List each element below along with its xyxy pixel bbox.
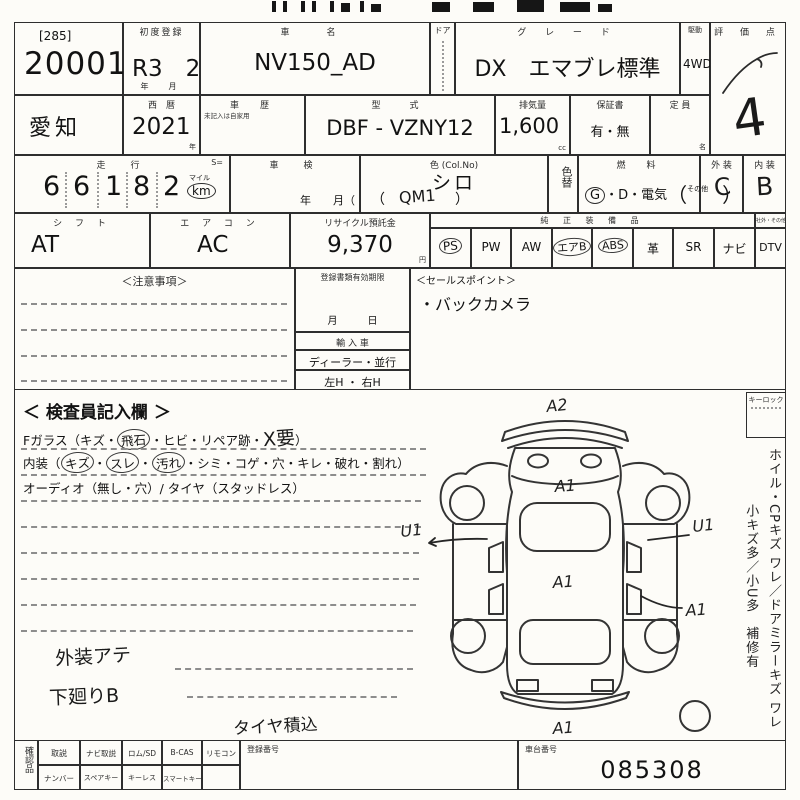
dtv-cell: DTV: [755, 228, 786, 268]
drive-label: 駆動: [681, 25, 709, 35]
number-plate-cell: ナンバー: [38, 765, 80, 790]
mileage-digit-5: 2: [163, 171, 180, 202]
mark-front-top: A2: [544, 395, 568, 416]
capacity-cell: 定 員 名: [650, 95, 710, 155]
interior-rest: ・シミ・コゲ・穴・キレ・破れ・割れ）: [185, 456, 410, 471]
equipment-sr: SR: [674, 240, 713, 254]
hand-note-exterior: 外装アテ: [54, 640, 131, 671]
interior-label: 内 装: [744, 158, 785, 171]
check-items-label-cell: 確認品: [14, 740, 38, 790]
first-registration-value: R3 2: [132, 49, 200, 83]
handle-position-cell: 左H ・ 右H: [295, 370, 410, 390]
exterior-label: 外 装: [701, 158, 742, 171]
fuel-g-circled: G: [585, 187, 605, 204]
sales-point-value: ・バックカメラ: [419, 291, 531, 315]
warranty-label: 保証書: [571, 98, 649, 111]
dtv-value: DTV: [756, 241, 785, 254]
aircon-label: エ ア コ ン: [151, 216, 289, 229]
mark-left-side: U1: [399, 520, 423, 541]
right-rear-wheel: [645, 619, 679, 653]
equipment-cell-abs: ABS: [592, 228, 633, 268]
recycle-yen: 円: [419, 255, 426, 265]
import-label: 輸 入 車: [296, 336, 409, 349]
sep2: ・: [139, 456, 152, 471]
equipment-ps: PS: [439, 237, 463, 255]
interior-circled-sure: スレ: [105, 451, 139, 474]
mark-right-side: U1: [691, 515, 715, 536]
equipment-cell-ps: PS: [430, 228, 471, 268]
dtv-header-cell: 社外・その他: [755, 213, 786, 228]
keylock-label: キーロック: [747, 395, 785, 405]
right-rear-fender: [623, 620, 678, 672]
year-label: 西 暦: [124, 98, 199, 111]
mileage-cell: 走 行 S= 6 6 1 8 2 マイル km: [14, 155, 230, 213]
chassis-number-value: 085308: [519, 756, 785, 784]
equipment-leather: 革: [634, 240, 672, 257]
car-name-label: 車 名: [201, 25, 429, 38]
year-unit: 年: [189, 142, 196, 152]
warranty-cell: 保証書 有・無: [570, 95, 650, 155]
auction-sheet: [285] 20001 初度登録 R3 2 年 月 車 名 NV150_AD ド…: [0, 0, 800, 800]
grade-value: DX エマブレ標準: [456, 51, 679, 83]
navi-manual-cell: ナビ取説: [80, 740, 122, 765]
bottom-empty-cell: [202, 765, 240, 790]
bcas-label: B-CAS: [163, 748, 201, 757]
handle-label: 左H ・ 右H: [296, 374, 409, 390]
equipment-cell-leather: 革: [633, 228, 673, 268]
right-rear-a1-arrow: [641, 596, 682, 608]
color-change-cell: 色替: [548, 155, 578, 213]
lot-prefix: [285]: [39, 29, 71, 43]
registration-number-cell: 登録番号: [240, 740, 518, 790]
equipment-cell-sr: SR: [673, 228, 714, 268]
keyless-cell: キーレス: [122, 765, 162, 790]
registration-number-label: 登録番号: [247, 744, 279, 755]
door-cell: ドア: [430, 22, 455, 95]
equipment-cell-airbag: エアB: [552, 228, 592, 268]
check-items-label: 確認品: [22, 746, 35, 773]
color-cell: 色 (Col.No) シロ （ ） QM1: [360, 155, 548, 213]
keyless-label: キーレス: [123, 773, 161, 783]
registration-docs-cell: 登録書類有効期限 月 日: [295, 268, 410, 332]
shift-cell: シ フ ト AT: [14, 213, 150, 268]
spare-key-cell: スペアキー: [80, 765, 122, 790]
stamp-circle: [680, 701, 710, 731]
keylock-cell: キーロック: [746, 392, 786, 438]
color-code-hand: QM1: [398, 186, 436, 208]
left-rear-fender: [452, 620, 507, 672]
equipment-airbag: エアB: [553, 237, 592, 258]
inspection-cell: 車 検 年 月（: [230, 155, 360, 213]
lot-number: 20001: [24, 46, 128, 82]
spare-key-label: スペアキー: [81, 773, 121, 783]
year-value: 2021: [132, 114, 191, 140]
audio-tire-line: オーディオ（無し・穴）/ タイヤ（スタッドレス）: [23, 478, 305, 497]
history-cell: 車 歴 未記入は自家用: [200, 95, 305, 155]
history-note: 未記入は自家用: [204, 110, 250, 120]
fglass-mid: ・ヒビ・リペア跡・: [150, 433, 263, 448]
displacement-value: 1,600: [499, 114, 559, 138]
equipment-header: 純 正 装 備 品: [430, 213, 755, 228]
interior-grade-hand: B: [755, 172, 774, 202]
mileage-s-label: S=: [211, 158, 223, 167]
rom-sd-label: ロム/SD: [123, 748, 161, 759]
aircon-cell: エ ア コ ン AC: [150, 213, 290, 268]
displacement-cell: 排気量 1,600 cc: [495, 95, 570, 155]
interior-circled-yogore: 汚れ: [151, 451, 185, 474]
inspector-title: ＜ 検査員記入欄 ＞: [23, 398, 171, 423]
equipment-label: 純 正 装 備 品: [431, 215, 754, 226]
displacement-unit: cc: [558, 144, 566, 152]
hand-note-tires: タイヤ積込: [232, 710, 318, 739]
capacity-unit: 名: [699, 142, 706, 152]
fuel-label: 燃 料: [579, 158, 699, 171]
car-name-cell: 車 名 NV150_AD: [200, 22, 430, 95]
equipment-aw: AW: [512, 240, 551, 254]
drive-value: 4WD: [683, 57, 712, 71]
dtv-header: 社外・その他: [756, 217, 785, 224]
left-front-fender: [441, 463, 507, 524]
mile-label: マイル: [189, 173, 210, 183]
import-car-cell: 輸 入 車: [295, 332, 410, 350]
equipment-pw: PW: [472, 240, 510, 254]
rom-sd-cell: ロム/SD: [122, 740, 162, 765]
right-u1-arrow: [648, 535, 689, 540]
model-value: DBF - VZNY12: [306, 116, 494, 140]
sidebar-vertical-note: ホイル・CPキズ ワレ／ドアミラーキズ ワレ 小キズ多／小U多 補修有: [736, 448, 784, 740]
left-front-wheel: [450, 486, 484, 520]
number-plate-label: ナンバー: [39, 773, 79, 784]
warranty-value: 有・無: [571, 121, 649, 140]
mileage-digit-1: 6: [43, 171, 60, 202]
right-front-fender: [623, 463, 689, 524]
shift-label: シ フ ト: [15, 216, 149, 229]
recycle-fee: 9,370: [291, 232, 429, 258]
lot-number-cell: [285] 20001: [14, 22, 123, 95]
mark-roof: A1: [551, 572, 574, 592]
recycle-label: リサイクル預託金: [291, 216, 429, 229]
smart-key-cell: スマートキー: [162, 765, 202, 790]
docs-label: 登録書類有効期限: [296, 272, 409, 283]
manual-cell: 取説: [38, 740, 80, 765]
km-label: km: [187, 183, 216, 199]
remote-label: リモコン: [203, 748, 239, 759]
bcas-cell: B-CAS: [162, 740, 202, 765]
inspection-units: 年 月（: [300, 192, 355, 208]
score-cell: 評 価 点 4: [710, 22, 786, 155]
chassis-number-cell: 車台番号 085308: [518, 740, 786, 790]
recycle-fee-cell: リサイクル預託金 9,370 円: [290, 213, 430, 268]
fglass-pre: Fガラス（キズ・: [23, 433, 117, 448]
grade-cell: グ レ ー ド DX エマブレ標準: [455, 22, 680, 95]
model-year-cell: 西 暦 2021 年: [123, 95, 200, 155]
color-change-label: 色替: [558, 166, 574, 188]
fuel-paren-open: （: [667, 183, 687, 207]
mileage-label: 走 行: [15, 158, 229, 171]
capacity-label: 定 員: [651, 98, 709, 111]
dealer-label: ディーラー・並行: [296, 354, 409, 370]
windshield: [520, 503, 610, 551]
first-registration-label: 初度登録: [124, 25, 199, 38]
car-damage-diagram: A2 A1 U1 U1 A1 A1 A1: [395, 392, 745, 742]
mileage-digit-2: 6: [73, 171, 90, 202]
model-code-cell: 型 式 DBF - VZNY12: [305, 95, 495, 155]
score-label: 評 価 点: [711, 25, 785, 38]
mileage-digit-4: 8: [133, 171, 150, 202]
smart-key-label: スマートキー: [163, 773, 201, 783]
exterior-grade-hand: C: [713, 172, 733, 202]
mark-rear-bottom: A1: [551, 718, 574, 738]
keylock-subtext-squiggle: [751, 407, 781, 409]
sales-point-cell: ＜セールスポイント＞ ・バックカメラ: [410, 268, 786, 390]
interior-circled-kizu: キズ: [60, 451, 94, 474]
model-label: 型 式: [306, 98, 494, 111]
fuel-options: ・D・電気: [605, 188, 667, 203]
equipment-abs: ABS: [597, 237, 628, 254]
manual-label: 取説: [39, 748, 79, 759]
hand-note-underbody: 下廻りB: [49, 681, 120, 710]
equipment-navi: ナビ: [715, 240, 754, 257]
mark-right-rear: A1: [684, 600, 707, 620]
fglass-close: ）: [295, 433, 308, 448]
fuel-cell: 燃 料 G・D・電気（その他）: [578, 155, 700, 213]
prefecture-cell: 愛知: [14, 95, 123, 155]
prefecture: 愛知: [29, 110, 81, 142]
mileage-digit-3: 1: [105, 171, 122, 202]
left-rear-wheel: [451, 619, 485, 653]
sales-point-label: ＜セールスポイント＞: [416, 272, 516, 287]
first-registration-cell: 初度登録 R3 2 年 月: [123, 22, 200, 95]
equipment-cell-navi: ナビ: [714, 228, 755, 268]
notes-cell: ＜注意事項＞: [14, 268, 295, 390]
exterior-grade-cell: 外 装 C: [700, 155, 743, 213]
left-u1-arrow: [429, 538, 487, 546]
equipment-cell-aw: AW: [511, 228, 552, 268]
interior-grade-cell: 内 装 B: [743, 155, 786, 213]
notes-label: ＜注意事項＞: [15, 273, 294, 289]
rear-window: [520, 620, 610, 664]
interior-pre: 内装（: [23, 456, 61, 471]
door-label: ドア: [431, 25, 454, 36]
inspection-label: 車 検: [231, 158, 359, 171]
interior-line: 内装（キズ・スレ・汚れ・シミ・コゲ・穴・キレ・破れ・割れ）: [23, 452, 410, 473]
grade-label: グ レ ー ド: [456, 25, 679, 38]
aircon-value: AC: [197, 232, 228, 258]
dealer-parallel-cell: ディーラー・並行: [295, 350, 410, 370]
first-registration-units: 年 月: [124, 81, 199, 92]
sep1: ・: [94, 456, 107, 471]
remote-cell: リモコン: [202, 740, 240, 765]
drive-cell: 駆動 4WD: [680, 22, 710, 95]
shift-value: AT: [31, 232, 59, 258]
equipment-cell-pw: PW: [471, 228, 511, 268]
navi-manual-label: ナビ取説: [81, 748, 121, 759]
mark-hood: A1: [553, 476, 576, 496]
car-name: NV150_AD: [201, 50, 429, 76]
chassis-number-label: 車台番号: [525, 744, 557, 755]
fglass-line: Fガラス（キズ・飛石・ヒビ・リペア跡・X要）: [23, 424, 308, 451]
right-front-wheel: [646, 486, 680, 520]
displacement-label: 排気量: [496, 98, 569, 111]
docs-units: 月 日: [296, 312, 409, 327]
